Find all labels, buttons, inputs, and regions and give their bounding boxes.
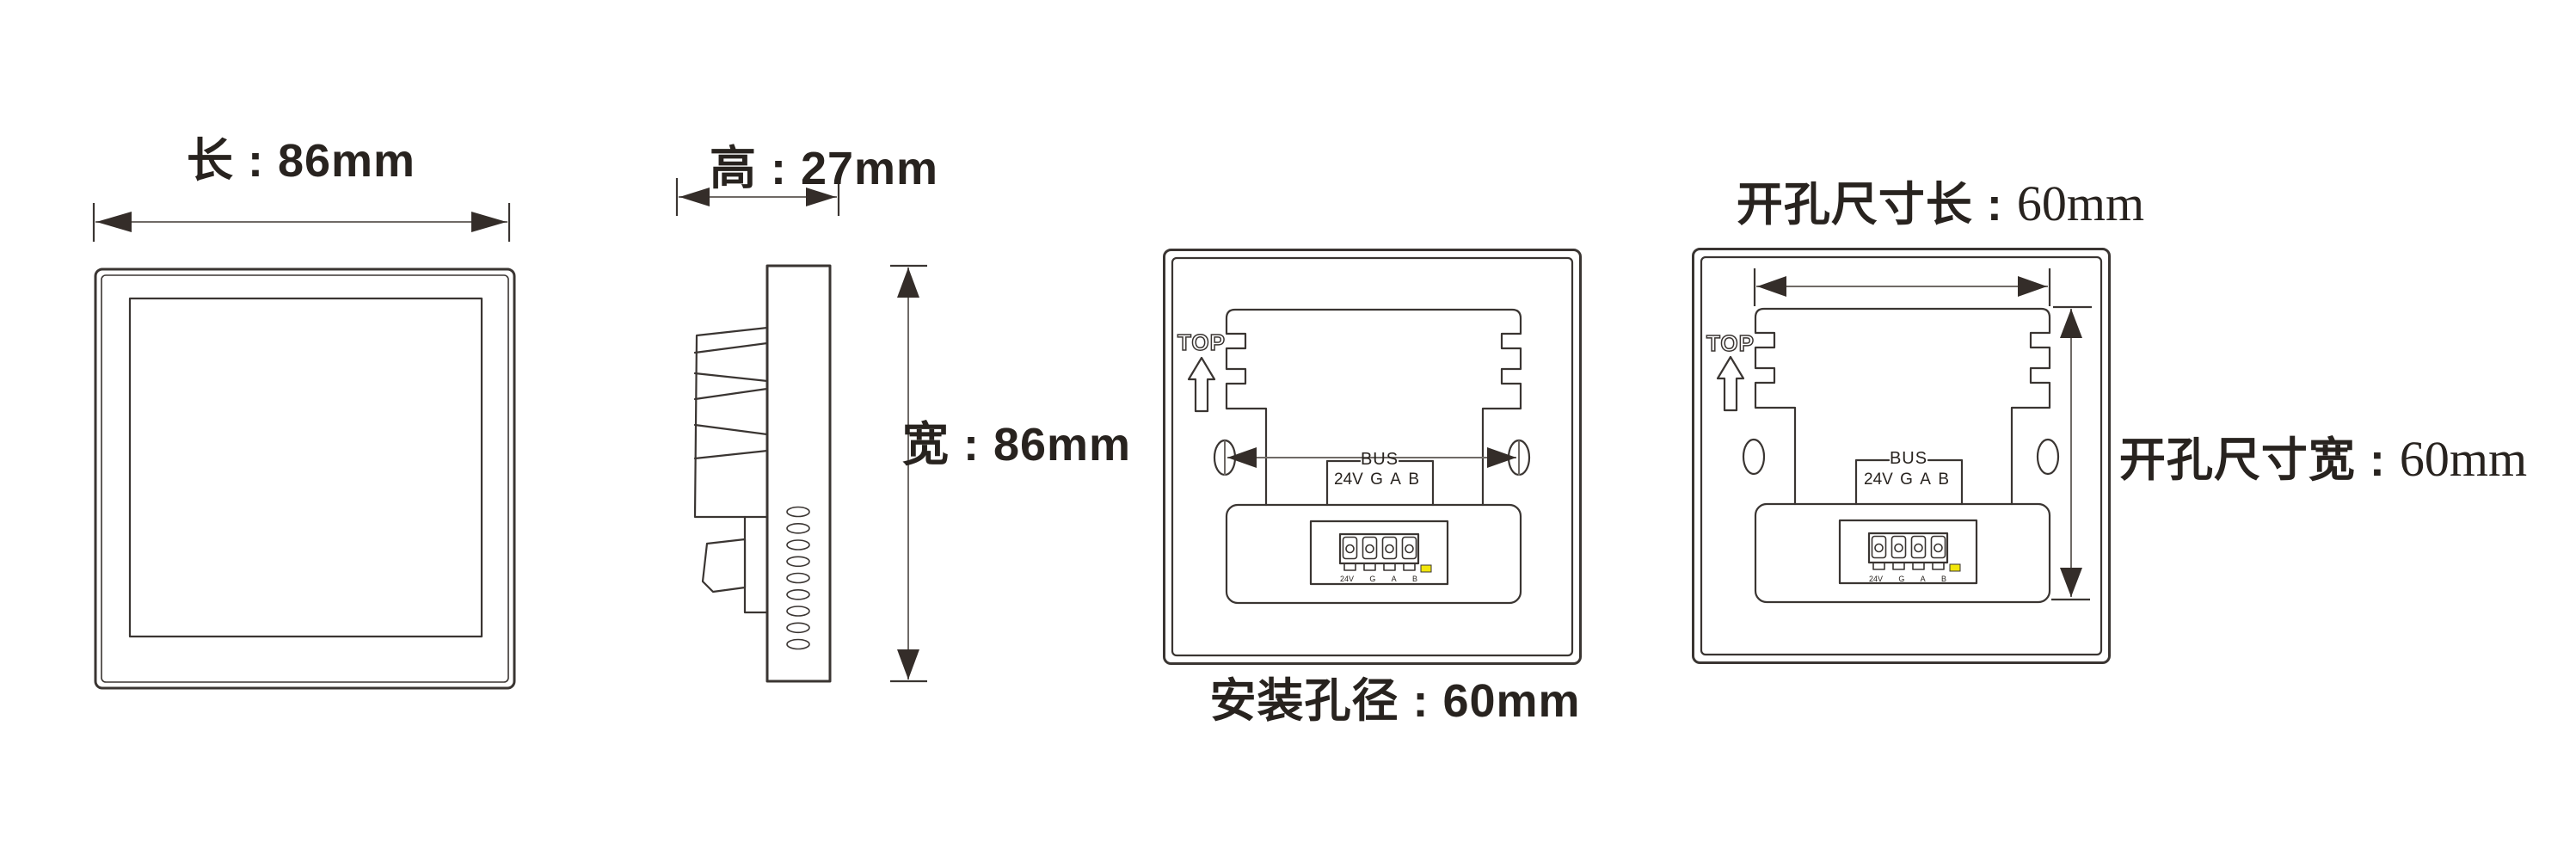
cutout-length-value: 60mm (2017, 175, 2144, 231)
vent-slots (787, 507, 809, 649)
drawing-geometry (0, 0, 2576, 861)
terminal-pin-a: A (1921, 575, 1926, 583)
bus-pin-g: G (1370, 470, 1383, 489)
mounting-clip (703, 539, 745, 592)
terminal-pin-g: G (1898, 575, 1904, 583)
cutout-length-prefix: 开孔尺寸长 : (1737, 179, 2017, 231)
bus-pin-b: B (1408, 470, 1419, 489)
bus-pin-g: G (1900, 470, 1913, 489)
bus-pin-a: A (1920, 470, 1931, 489)
cutout-width-value: 60mm (2400, 431, 2527, 487)
top-marker-cutout-view: TOP (1706, 332, 1755, 354)
terminal-pin-a: A (1392, 575, 1397, 583)
bus-pins-mounting-view: 24V G A B (1334, 470, 1419, 489)
front-view-drawing (94, 203, 514, 688)
top-marker-mounting-view: TOP (1177, 331, 1226, 354)
terminal-pin-24v: 24V (1869, 575, 1883, 583)
bus-title-mounting-view: BUS (1361, 451, 1399, 468)
terminal-pin-g: G (1369, 575, 1375, 583)
side-view-drawing (677, 178, 927, 681)
dimension-drawing-canvas: 长 : 86mm 高 : 27mm 宽 : 86mm 安装孔径 : 60mm 开… (0, 0, 2576, 861)
terminal-pin-24v: 24V (1340, 575, 1354, 583)
front-length-dim-label: 长 : 86mm (187, 138, 415, 184)
bus-title-cutout-view: BUS (1890, 450, 1927, 467)
cutout-width-label: 开孔尺寸宽 : 60mm (2119, 434, 2527, 484)
terminal-pin-labels-cutout-view: 24V G A B (1869, 575, 1946, 583)
terminal-pin-labels-mounting-view: 24V G A B (1340, 575, 1417, 583)
screen-area (130, 298, 482, 637)
bus-pin-b: B (1938, 470, 1949, 489)
side-width-dim-label: 宽 : 86mm (902, 421, 1131, 468)
bus-pin-24v: 24V (1334, 470, 1363, 489)
mounting-hole-caption: 安装孔径 : 60mm (1209, 678, 1580, 724)
bus-pins-cutout-view: 24V G A B (1864, 470, 1949, 489)
cutout-length-label: 开孔尺寸长 : 60mm (1737, 179, 2144, 229)
bus-pin-24v: 24V (1864, 470, 1893, 489)
terminal-pin-b: B (1412, 575, 1417, 583)
cutout-width-prefix: 开孔尺寸宽 : (2119, 434, 2400, 486)
terminal-pin-b: B (1941, 575, 1946, 583)
bus-pin-a: A (1390, 470, 1401, 489)
side-height-dim-label: 高 : 27mm (710, 145, 938, 192)
